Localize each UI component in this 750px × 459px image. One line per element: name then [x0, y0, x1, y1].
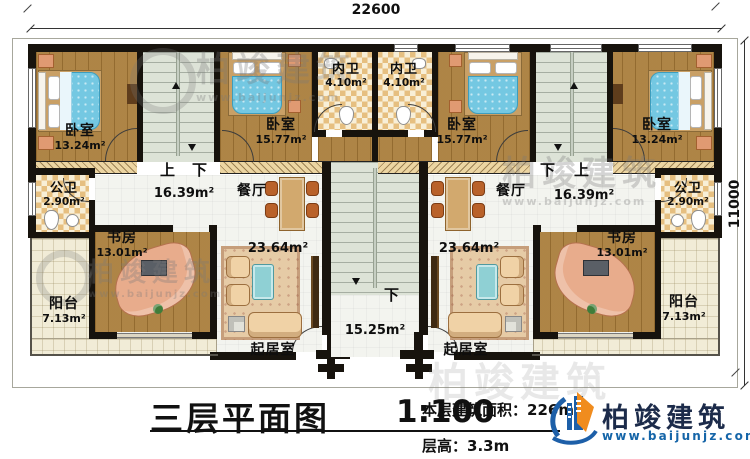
- parapet: [30, 238, 32, 356]
- wall: [89, 168, 95, 178]
- floor-under-bath: [378, 137, 432, 162]
- slider-threshold: [117, 333, 192, 338]
- wall: [372, 44, 378, 162]
- wall: [89, 332, 117, 339]
- wall: [36, 232, 95, 238]
- wall: [214, 44, 220, 162]
- bed-pillow: [233, 62, 255, 74]
- nightstand: [38, 54, 54, 68]
- dining-chair: [472, 181, 485, 196]
- wall: [655, 168, 714, 175]
- bed-pillow: [48, 76, 60, 100]
- wall: [419, 162, 428, 335]
- wall: [533, 225, 540, 338]
- dining-chair: [472, 203, 485, 218]
- dining-chair: [306, 181, 319, 196]
- stair-rail: [176, 52, 180, 156]
- wall: [577, 225, 655, 232]
- wall: [655, 168, 661, 178]
- desk-plant: [587, 304, 597, 314]
- wall-column: [415, 357, 423, 379]
- dining-table: [445, 177, 471, 231]
- floor-study: [540, 232, 655, 332]
- stair-arrow-up: [172, 82, 180, 89]
- stair-arrow-down: [554, 144, 562, 151]
- wall: [372, 130, 408, 137]
- bed-pillow: [48, 104, 60, 128]
- nightstand: [288, 100, 301, 113]
- tv-cabinet: [311, 256, 319, 328]
- dining-chair: [265, 203, 278, 218]
- bed-headboard: [704, 72, 712, 130]
- wall: [36, 168, 95, 175]
- armchair: [500, 284, 524, 306]
- floor-hall: [331, 295, 419, 357]
- slider-threshold: [558, 333, 633, 338]
- wall: [192, 332, 217, 339]
- computer-monitor: [583, 260, 609, 276]
- computer-monitor: [141, 260, 167, 276]
- nightstand: [696, 54, 712, 68]
- floor-study: [95, 232, 210, 332]
- side-table: [228, 316, 245, 332]
- stair-arrow-down: [188, 144, 196, 151]
- bed-pillow: [259, 62, 281, 74]
- bed-headboard: [232, 52, 282, 60]
- wall: [454, 352, 540, 360]
- nightstand: [38, 136, 54, 150]
- window: [394, 44, 418, 52]
- armchair: [226, 256, 250, 278]
- dining-chair: [265, 181, 278, 196]
- stair-arrow-up: [570, 82, 578, 89]
- sink: [324, 58, 338, 69]
- wall: [530, 44, 536, 162]
- armchair: [500, 256, 524, 278]
- wall-column: [327, 357, 335, 379]
- window: [638, 44, 692, 52]
- sink: [671, 214, 684, 227]
- wardrobe: [613, 84, 623, 104]
- bed-sheet: [678, 72, 690, 130]
- nightstand: [449, 54, 462, 67]
- bed-pillow: [469, 62, 491, 74]
- window: [455, 44, 510, 52]
- nightstand: [288, 54, 301, 67]
- wall: [210, 225, 217, 338]
- window: [714, 182, 722, 216]
- wall: [210, 352, 296, 360]
- desk-plant: [153, 304, 163, 314]
- stair-rail: [373, 168, 377, 288]
- wall-column: [414, 332, 423, 359]
- parapet: [30, 354, 218, 356]
- window: [28, 182, 36, 216]
- sofa: [248, 312, 302, 338]
- sofa: [448, 312, 502, 338]
- window: [714, 68, 722, 128]
- wardrobe: [127, 84, 137, 104]
- tv-cabinet: [431, 256, 439, 328]
- bed-sheet: [60, 72, 72, 130]
- wall: [533, 332, 558, 339]
- floor-under-bath: [318, 137, 372, 162]
- dining-table: [279, 177, 305, 231]
- dining-chair: [306, 203, 319, 218]
- coffee-table: [476, 264, 498, 300]
- coffee-table: [252, 264, 274, 300]
- sink: [412, 58, 426, 69]
- window: [28, 68, 36, 128]
- wall: [95, 225, 173, 232]
- side-table: [505, 316, 522, 332]
- dining-chair: [431, 203, 444, 218]
- armchair: [226, 284, 250, 306]
- nightstand: [696, 136, 712, 150]
- nightstand: [449, 100, 462, 113]
- parapet: [718, 238, 720, 356]
- bed-pillow: [690, 104, 702, 128]
- wall: [655, 232, 714, 238]
- stair-rail: [570, 52, 574, 156]
- bed-pillow: [495, 62, 517, 74]
- bed-mattress: [468, 76, 518, 114]
- window-sill: [378, 161, 530, 174]
- window: [550, 44, 602, 52]
- floorplan-page: 柏竣建筑 www.baijunjz.com 柏竣建筑 www.baijunjz.…: [0, 0, 750, 459]
- wall: [633, 332, 661, 339]
- bed-headboard: [38, 72, 46, 130]
- parapet: [532, 354, 720, 356]
- wall: [137, 44, 143, 162]
- wall: [655, 200, 661, 338]
- dining-chair: [431, 181, 444, 196]
- bed-mattress: [232, 76, 282, 114]
- wall: [322, 162, 331, 335]
- bed-headboard: [468, 52, 518, 60]
- bed-pillow: [690, 76, 702, 100]
- sink: [66, 214, 79, 227]
